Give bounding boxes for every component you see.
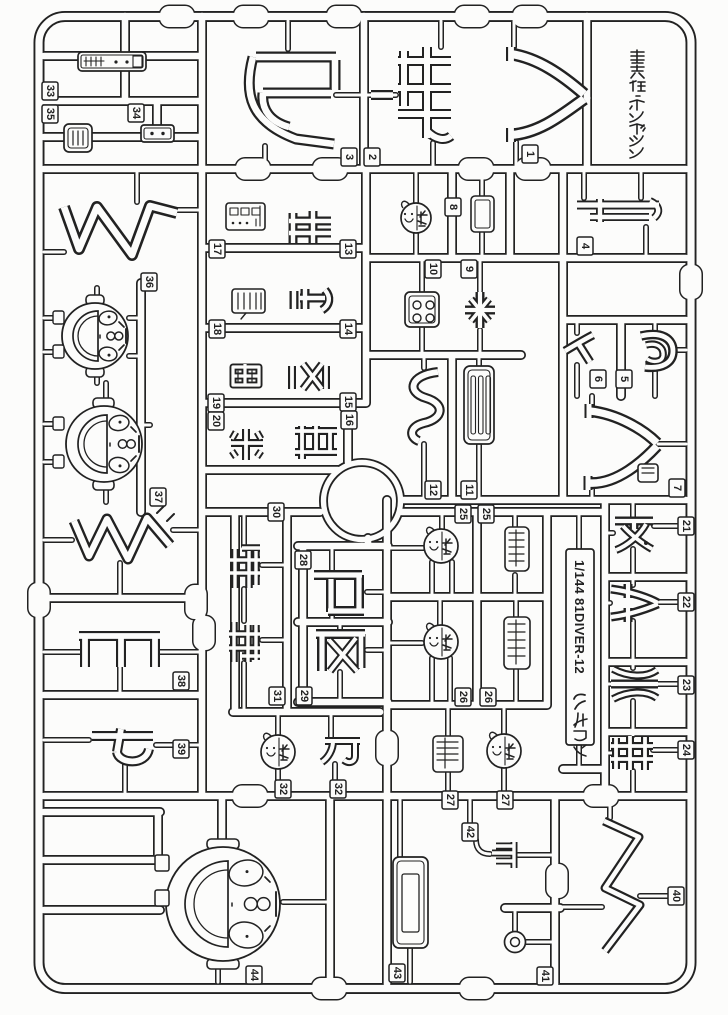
svg-text:32: 32	[332, 783, 344, 795]
svg-text:30: 30	[270, 506, 282, 518]
svg-text:15: 15	[342, 396, 354, 408]
svg-text:36: 36	[143, 276, 155, 288]
svg-text:4: 4	[579, 243, 591, 250]
svg-text:25: 25	[457, 508, 469, 520]
svg-text:16: 16	[343, 414, 355, 426]
svg-text:27: 27	[499, 794, 511, 806]
svg-text:8: 8	[447, 204, 459, 210]
svg-text:17: 17	[211, 243, 223, 255]
svg-text:2: 2	[366, 154, 378, 160]
svg-text:11: 11	[463, 484, 475, 496]
svg-text:22: 22	[680, 596, 692, 608]
svg-text:44: 44	[248, 969, 260, 982]
svg-text:21: 21	[680, 520, 692, 532]
svg-text:10: 10	[427, 263, 439, 275]
svg-text:14: 14	[342, 323, 354, 336]
svg-text:6: 6	[592, 376, 604, 382]
svg-text:13: 13	[342, 243, 354, 255]
svg-text:31: 31	[271, 690, 283, 702]
svg-text:12: 12	[427, 484, 439, 496]
svg-text:39: 39	[175, 743, 187, 755]
svg-text:24: 24	[680, 744, 692, 757]
svg-text:33: 33	[44, 85, 56, 97]
svg-text:26: 26	[457, 691, 469, 703]
svg-text:35: 35	[44, 108, 56, 120]
svg-text:27: 27	[444, 794, 456, 806]
svg-text:32: 32	[277, 783, 289, 795]
svg-text:28: 28	[297, 554, 309, 566]
svg-text:19: 19	[210, 397, 222, 409]
svg-text:1/144 81DIVER-12: 1/144 81DIVER-12	[572, 560, 587, 674]
svg-text:42: 42	[464, 826, 476, 838]
svg-text:26: 26	[482, 691, 494, 703]
svg-text:43: 43	[391, 967, 403, 979]
svg-text:38: 38	[175, 675, 187, 687]
svg-text:37: 37	[152, 491, 164, 503]
svg-text:20: 20	[210, 415, 222, 427]
svg-text:40: 40	[670, 890, 682, 902]
svg-text:41: 41	[539, 970, 551, 982]
svg-text:5: 5	[618, 376, 630, 382]
svg-text:18: 18	[211, 323, 223, 335]
svg-text:29: 29	[298, 690, 310, 702]
svg-text:34: 34	[130, 107, 142, 120]
svg-text:9: 9	[463, 266, 475, 272]
svg-text:7: 7	[671, 485, 683, 491]
svg-text:3: 3	[343, 154, 355, 160]
svg-text:25: 25	[480, 508, 492, 520]
svg-text:1: 1	[524, 151, 536, 157]
svg-text:23: 23	[680, 679, 692, 691]
